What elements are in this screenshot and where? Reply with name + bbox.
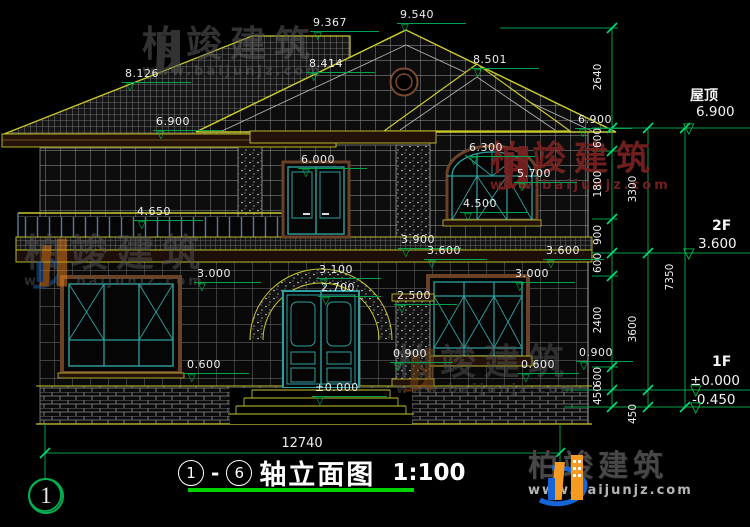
elevation-marker: 6.900▽: [153, 110, 222, 131]
elevation-marker: 0.900▽: [390, 342, 453, 363]
level-triangle-icon: ▽: [464, 213, 472, 223]
level-triangle-icon: ▽: [322, 297, 330, 307]
arched-window-2f: [443, 146, 541, 226]
elevation-marker: 4.650▽: [134, 200, 203, 221]
level-triangle-icon: ▽: [157, 131, 165, 141]
level-triangle-icon: ▽: [428, 260, 436, 270]
level-triangle-icon: ▽: [126, 83, 134, 93]
level-triangle-icon: ▽: [398, 305, 406, 315]
brand-logo: 柏竣建筑 www.baijunjz.com: [528, 450, 693, 498]
elevation-marker: 4.500▽: [460, 192, 527, 213]
level-triangle-icon: ▽: [579, 129, 587, 139]
elevation-marker: 3.000▽: [512, 262, 575, 283]
roof-label: 屋顶: [690, 85, 718, 105]
elevation-marker: 3.000▽: [194, 262, 261, 283]
elevation-marker: 6.000▽: [298, 148, 367, 169]
dim-label: 600: [592, 118, 604, 158]
balcony-door: [283, 162, 349, 237]
elevation-marker: 3.600▽: [424, 239, 487, 260]
floor1-label: 1F: [712, 354, 731, 370]
floor-band: [16, 237, 592, 262]
dim-label: 3300: [627, 169, 639, 209]
drawing-title: 1 - 6 轴立面图 1:100: [178, 453, 466, 492]
elevation-marker: 8.501▽: [470, 48, 539, 69]
dim-label: 600: [592, 243, 604, 283]
gable-vent: [391, 69, 418, 96]
elevation-marker: 2.700▽: [318, 276, 381, 297]
level-triangle-icon: ▽: [188, 374, 196, 384]
level-triangle-icon: ▽: [474, 69, 482, 79]
dim-label: 2400: [592, 300, 604, 340]
elevation-marker: 9.367▽: [310, 11, 379, 32]
elevation-marker: 2.500▽: [394, 284, 457, 305]
dim-label: 2640: [592, 57, 604, 97]
dim-label: 1800: [592, 164, 604, 204]
dim-label: 7350: [664, 257, 676, 297]
level-triangle-icon: ▽: [690, 400, 702, 414]
dim-label: 450: [592, 375, 604, 415]
level-triangle-icon: ▽: [198, 283, 206, 293]
window-1f-left: [58, 277, 184, 378]
dim-label: 3600: [627, 309, 639, 349]
level-triangle-icon: ▽: [302, 169, 310, 179]
axis-range-dash: -: [211, 461, 219, 485]
elevation-marker: 9.540▽: [397, 3, 466, 24]
overall-width-dim: 12740: [255, 436, 349, 451]
level-triangle-icon: ▽: [314, 32, 322, 42]
floor2-label: 2F: [712, 218, 731, 234]
level-triangle-icon: ▽: [394, 363, 402, 373]
level-triangle-icon: ▽: [401, 24, 409, 34]
elevation-marker: 6.300▽: [466, 136, 535, 157]
elevation-marker: 0.900▽: [576, 341, 633, 362]
axis-to-bubble: 6: [226, 460, 252, 486]
dim-label: 450: [627, 394, 639, 434]
title-underline: [188, 488, 414, 492]
elevation-marker: ±0.000▽: [312, 376, 387, 397]
level-triangle-icon: ▽: [683, 121, 695, 135]
level-triangle-icon: ▽: [310, 73, 318, 83]
elevation-marker: 8.414▽: [306, 52, 375, 73]
floor2-level: 3.600: [698, 236, 737, 252]
level-triangle-icon: ▽: [402, 249, 410, 259]
level-triangle-icon: ▽: [683, 246, 695, 260]
elevation-marker: 0.600▽: [184, 353, 249, 374]
level-triangle-icon: ▽: [580, 362, 588, 372]
level-triangle-icon: ▽: [516, 283, 524, 293]
brand-logo-icon: [528, 450, 598, 512]
axis-from-bubble: 1: [178, 460, 204, 486]
level-triangle-icon: ▽: [138, 221, 146, 231]
drawing-title-text: 轴立面图: [259, 453, 375, 492]
drawing-scale: 1:100: [392, 460, 465, 486]
entrance-door: [283, 291, 359, 388]
level-triangle-icon: ▽: [316, 397, 324, 407]
elevation-marker: 8.126▽: [122, 62, 191, 83]
cad-elevation-screenshot: 柏竣建筑 www.baijunjz.com 柏竣建筑 www.baijunjz.…: [0, 0, 750, 527]
elevation-marker: 0.600▽: [518, 353, 579, 374]
level-triangle-icon: ▽: [470, 157, 478, 167]
roof-level: 6.900: [696, 104, 735, 120]
axis-bubble-1: 1: [28, 478, 64, 514]
level-triangle-icon: ▽: [522, 374, 530, 384]
elevation-marker: 5.700▽: [514, 162, 577, 183]
